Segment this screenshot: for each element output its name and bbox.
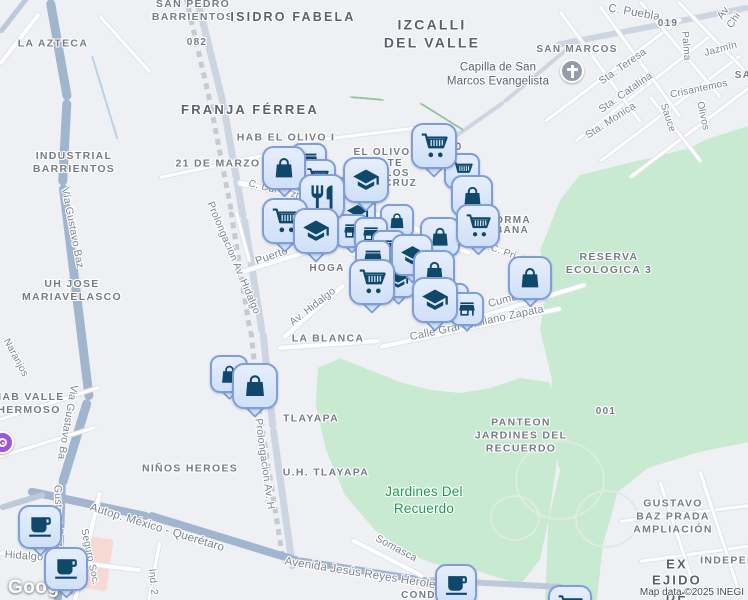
marker-body [293, 208, 339, 254]
cart-icon [465, 213, 491, 239]
map-marker-grad[interactable] [412, 277, 458, 323]
map-marker-cart[interactable] [456, 204, 500, 248]
map-marker-cart[interactable] [411, 123, 457, 169]
cart-icon [358, 268, 386, 296]
marker-body [411, 123, 457, 169]
store-icon [457, 299, 477, 319]
map-canvas[interactable]: SAN PEDRO BARRIENTOSISIDRO FABELA082LA A… [0, 0, 748, 600]
map-marker-bag[interactable] [232, 363, 278, 409]
bag-icon [271, 155, 297, 181]
grad-icon [421, 286, 449, 314]
map-marker-cart[interactable] [548, 585, 592, 600]
map-attribution: Map data ©2025 INEGI [640, 587, 744, 598]
marker-body [18, 505, 62, 549]
map-marker-cart[interactable] [349, 259, 395, 305]
marker-body [435, 564, 477, 600]
map-marker-coffee[interactable] [18, 505, 62, 549]
bag-icon [387, 211, 407, 231]
map-marker-grad[interactable] [293, 208, 339, 254]
cart-icon [557, 594, 583, 600]
marker-body [456, 204, 500, 248]
marker-body [508, 256, 552, 300]
coffee-icon [53, 556, 79, 582]
marker-body [343, 157, 389, 203]
markers-layer [0, 0, 748, 600]
coffee-icon [444, 573, 469, 598]
marker-body [44, 547, 88, 591]
fork-icon [308, 183, 336, 211]
map-marker-coffee[interactable] [435, 564, 477, 600]
cart-icon [420, 132, 448, 160]
grad-icon [302, 217, 330, 245]
bag-icon [517, 265, 543, 291]
bag-icon [241, 372, 269, 400]
marker-body [548, 585, 592, 600]
marker-body [412, 277, 458, 323]
grad-icon [352, 166, 380, 194]
map-marker-bag[interactable] [508, 256, 552, 300]
map-marker-grad[interactable] [343, 157, 389, 203]
marker-body [349, 259, 395, 305]
marker-body [232, 363, 278, 409]
map-marker-coffee[interactable] [44, 547, 88, 591]
coffee-icon [27, 514, 53, 540]
